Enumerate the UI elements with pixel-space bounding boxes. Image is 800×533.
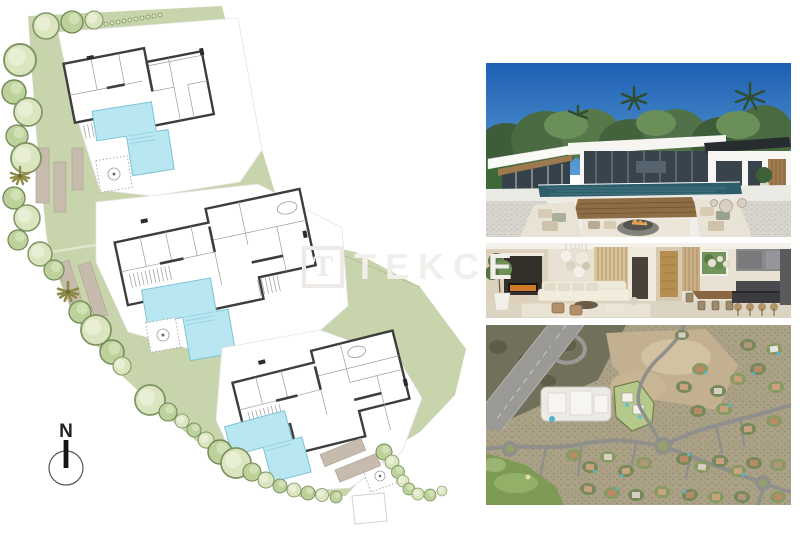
photo-villa-exterior[interactable] <box>486 63 791 237</box>
villa-2-patio <box>146 318 181 353</box>
photo-aerial[interactable] <box>486 325 791 505</box>
north-arrow: N <box>49 421 83 485</box>
villa-1-patio <box>96 156 133 193</box>
gold-art-panel <box>656 247 682 301</box>
central-pavilion <box>568 135 726 189</box>
interior-render <box>486 243 791 318</box>
north-label: N <box>59 421 73 442</box>
aerial-view <box>486 325 791 505</box>
media-collage: N T TEKCE <box>0 0 800 533</box>
sunken-lounge <box>520 197 752 237</box>
neighbour-plot-outline <box>352 493 387 524</box>
photo-interior[interactable] <box>486 243 791 318</box>
villa-exterior-render <box>486 63 791 237</box>
tall-door <box>632 257 648 299</box>
white-building-complex <box>541 387 611 422</box>
site-plan: N <box>0 0 480 533</box>
slat-wall-2 <box>682 247 700 291</box>
